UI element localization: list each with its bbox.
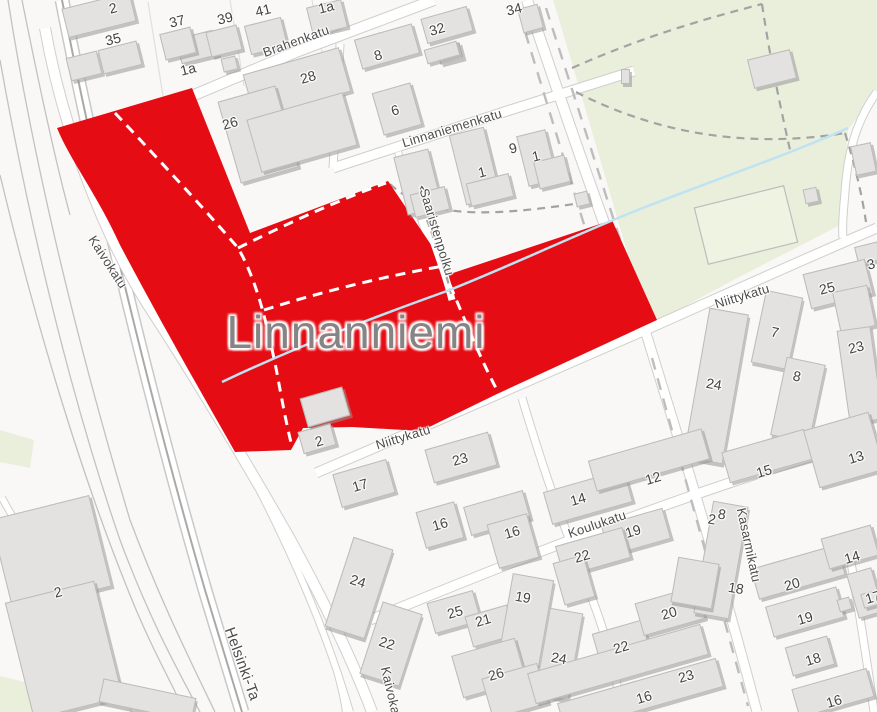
building bbox=[821, 524, 877, 569]
building bbox=[306, 0, 348, 36]
building bbox=[837, 326, 877, 424]
building bbox=[332, 459, 395, 508]
building bbox=[721, 429, 812, 483]
building bbox=[533, 155, 571, 190]
building bbox=[621, 69, 630, 84]
building bbox=[670, 557, 719, 610]
building bbox=[416, 501, 465, 549]
building bbox=[785, 636, 836, 677]
building bbox=[354, 23, 420, 69]
building bbox=[297, 423, 336, 454]
building bbox=[221, 55, 239, 72]
building bbox=[588, 428, 710, 491]
map-canvas[interactable]: Linnanniemi 21a373941351a343282826691113… bbox=[0, 0, 877, 712]
building bbox=[517, 4, 544, 34]
building bbox=[574, 191, 591, 208]
building bbox=[61, 0, 136, 38]
building bbox=[99, 678, 197, 712]
building bbox=[791, 668, 874, 712]
buildings-layer bbox=[0, 0, 877, 712]
building bbox=[300, 387, 351, 428]
building bbox=[66, 50, 103, 81]
building bbox=[850, 142, 877, 176]
building bbox=[486, 513, 539, 569]
building bbox=[424, 432, 497, 484]
building bbox=[420, 6, 473, 44]
building bbox=[244, 17, 288, 55]
building bbox=[803, 412, 877, 488]
building bbox=[836, 596, 852, 612]
building bbox=[372, 82, 423, 135]
building bbox=[747, 49, 797, 89]
building bbox=[98, 41, 143, 75]
building bbox=[803, 187, 820, 205]
